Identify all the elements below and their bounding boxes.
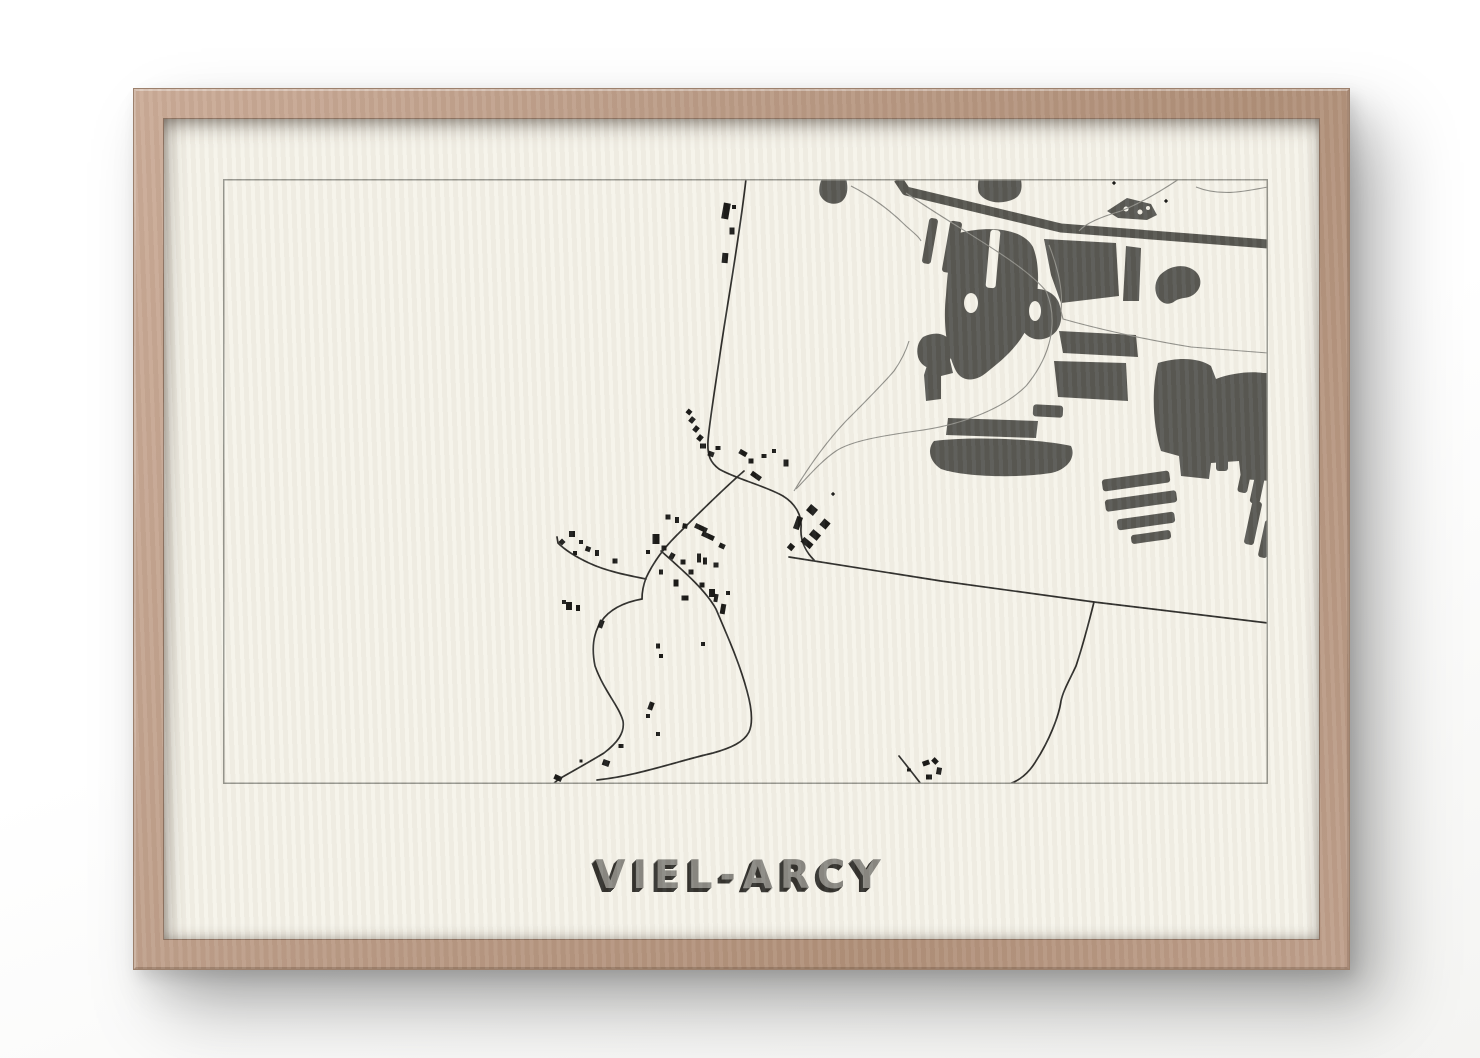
building bbox=[716, 446, 721, 450]
forest-strip bbox=[1244, 500, 1263, 545]
building bbox=[688, 416, 696, 424]
building bbox=[646, 714, 650, 718]
building bbox=[732, 205, 736, 209]
forest-shape bbox=[930, 439, 1073, 477]
building bbox=[809, 529, 821, 541]
building bbox=[566, 602, 572, 610]
forest-strip bbox=[1258, 519, 1268, 558]
building bbox=[1112, 181, 1116, 185]
building bbox=[674, 580, 679, 587]
building bbox=[762, 454, 767, 458]
forest-shape bbox=[978, 179, 1022, 202]
poster-title: VIEL-ARCY bbox=[164, 853, 1319, 898]
forest-strip bbox=[1105, 490, 1178, 512]
building bbox=[666, 515, 671, 520]
building bbox=[806, 504, 818, 516]
forest-strip bbox=[1117, 512, 1176, 531]
forest-shape bbox=[1155, 266, 1200, 304]
building bbox=[692, 425, 700, 433]
forest-clearing bbox=[1029, 301, 1041, 321]
building bbox=[647, 701, 654, 710]
building bbox=[1164, 199, 1168, 203]
building bbox=[701, 531, 715, 541]
building bbox=[653, 534, 660, 544]
building bbox=[750, 471, 762, 481]
forest-clearing bbox=[964, 293, 978, 313]
building bbox=[819, 518, 830, 529]
building bbox=[714, 563, 719, 568]
building bbox=[703, 558, 707, 565]
building bbox=[659, 654, 663, 658]
forest-shape bbox=[946, 418, 1038, 438]
forest-shape bbox=[924, 356, 953, 401]
map-svg bbox=[223, 179, 1268, 784]
building bbox=[576, 605, 580, 611]
building bbox=[907, 769, 911, 772]
building bbox=[682, 523, 688, 529]
building bbox=[931, 757, 939, 765]
building bbox=[722, 253, 729, 263]
building bbox=[738, 449, 747, 457]
building bbox=[700, 583, 705, 588]
building bbox=[675, 517, 679, 523]
building bbox=[700, 444, 706, 449]
building bbox=[579, 540, 583, 544]
building bbox=[597, 619, 604, 628]
building bbox=[685, 408, 692, 415]
forest-shape bbox=[1044, 239, 1119, 303]
building bbox=[694, 523, 708, 533]
forest-strip bbox=[1131, 530, 1172, 544]
building bbox=[585, 546, 591, 552]
building bbox=[922, 759, 930, 766]
building bbox=[656, 732, 660, 736]
building bbox=[662, 546, 667, 551]
wall-background: VIEL-ARCY bbox=[0, 0, 1480, 1058]
building bbox=[562, 600, 566, 604]
building bbox=[749, 459, 754, 464]
building bbox=[689, 570, 694, 575]
road-line bbox=[708, 179, 814, 560]
picture-frame: VIEL-ARCY bbox=[133, 88, 1350, 970]
building bbox=[772, 449, 776, 453]
map-dot bbox=[1138, 210, 1143, 215]
poster-paper: VIEL-ARCY bbox=[164, 119, 1319, 939]
road-line bbox=[789, 557, 1268, 623]
building bbox=[602, 759, 611, 767]
forest-strip bbox=[1216, 453, 1228, 471]
building bbox=[701, 642, 705, 646]
building bbox=[718, 542, 726, 549]
forest-strip bbox=[922, 218, 939, 265]
forest-strip bbox=[1101, 470, 1170, 491]
building bbox=[936, 767, 942, 775]
building bbox=[787, 543, 795, 551]
building bbox=[709, 589, 715, 597]
building bbox=[569, 531, 575, 537]
building bbox=[726, 591, 730, 595]
map-content bbox=[553, 179, 1268, 784]
building bbox=[784, 460, 789, 467]
minor-road-line bbox=[1196, 187, 1268, 192]
building bbox=[696, 434, 704, 442]
minor-road-line bbox=[794, 341, 909, 491]
building bbox=[721, 203, 731, 220]
building bbox=[656, 644, 660, 649]
building bbox=[619, 744, 624, 748]
forest-shape bbox=[819, 179, 847, 204]
building bbox=[659, 570, 663, 575]
map-dot bbox=[1146, 206, 1150, 210]
building bbox=[831, 492, 835, 496]
forest-shape bbox=[1054, 361, 1128, 401]
building bbox=[720, 604, 727, 615]
forest-strip bbox=[1033, 404, 1064, 418]
building bbox=[926, 775, 932, 780]
road-line bbox=[1009, 602, 1094, 784]
building bbox=[573, 551, 577, 555]
building bbox=[730, 228, 735, 235]
building bbox=[697, 554, 701, 563]
building bbox=[646, 550, 650, 554]
building bbox=[682, 596, 689, 601]
building bbox=[613, 559, 618, 564]
building bbox=[580, 760, 583, 763]
forest-shape bbox=[1123, 246, 1141, 301]
road-line bbox=[557, 537, 646, 579]
building bbox=[681, 560, 686, 565]
building bbox=[595, 550, 599, 556]
